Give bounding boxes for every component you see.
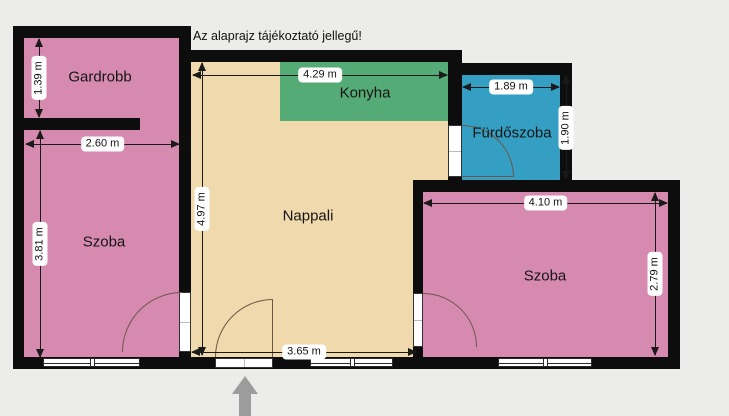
wall-right-outer [668,180,680,369]
dimension-label: 3.65 m [282,345,326,360]
door-furdoszoba-jamb [448,125,462,177]
disclaimer-note: Az alaprajz tájékoztató jellegű! [193,29,362,43]
wall-left-block-top [13,26,191,38]
arrow-down-icon [651,347,659,356]
arrow-down-icon [562,171,570,180]
arrow-right-icon [171,140,180,148]
arrow-right-icon [408,348,417,356]
dimension-label: 2.60 m [81,137,125,152]
dimension-label: 1.89 m [489,80,533,95]
dimension-nappali-height: 4.97 m [195,62,209,356]
wall-bath-top [448,63,572,75]
wall-nappali-top [191,50,462,62]
door-entrance-jamb [215,358,273,368]
dimension-label: 3.81 m [33,222,48,266]
door-szoba-right-jamb [413,293,423,347]
entrance-arrow-body [239,394,251,416]
dimension-furdoszoba-height: 1.90 m [559,75,573,180]
arrow-up-icon [35,38,43,47]
dimension-furdoszoba-width: 1.89 m [462,80,560,94]
dimension-label: 2.79 m [648,252,663,296]
dimension-szoba-left-height: 3.81 m [33,130,47,358]
window-szoba-right [498,358,592,367]
dimension-nappali-bottom-width: 3.65 m [191,345,417,359]
dimension-nappali-width: 4.29 m [192,68,448,82]
dimension-label: 4.97 m [195,187,210,231]
arrow-left-icon [423,199,432,207]
arrow-up-icon [198,62,206,71]
floor-plan: Az alaprajz tájékoztató jellegű! Gardrob… [0,0,729,416]
arrow-up-icon [651,192,659,201]
dimension-szoba-right-height: 2.79 m [648,192,662,356]
room-label-furdoszoba: Fürdőszoba [472,125,551,142]
arrow-right-icon [439,71,448,79]
room-label-szoba-right: Szoba [524,268,567,285]
wall-szoba-right-top [413,180,680,192]
entrance-arrow-icon [232,376,258,394]
arrow-down-icon [36,349,44,358]
wall-szoba-right-left-upper [413,192,423,293]
room-label-szoba-left: Szoba [83,234,126,251]
window-szoba-left [43,358,140,367]
arrow-up-icon [36,130,44,139]
dimension-szoba-left-width: 2.60 m [25,137,180,151]
arrow-up-icon [562,75,570,84]
arrow-down-icon [35,109,43,118]
wall-gardrobb-divider [23,118,140,130]
arrow-left-icon [462,83,471,91]
room-label-konyha: Konyha [340,85,391,102]
dimension-label: 4.29 m [298,68,342,83]
room-label-gardrobb: Gardrobb [68,69,131,86]
dimension-label: 1.39 m [32,56,47,100]
wall-left-divider-upper [179,26,191,292]
wall-left-outer [13,26,24,369]
dimension-gardrobb-height: 1.39 m [32,38,46,118]
room-label-nappali: Nappali [283,208,334,225]
dimension-szoba-right-width: 4.10 m [423,196,668,210]
arrow-left-icon [191,348,200,356]
dimension-label: 1.90 m [559,106,574,150]
dimension-label: 4.10 m [524,196,568,211]
